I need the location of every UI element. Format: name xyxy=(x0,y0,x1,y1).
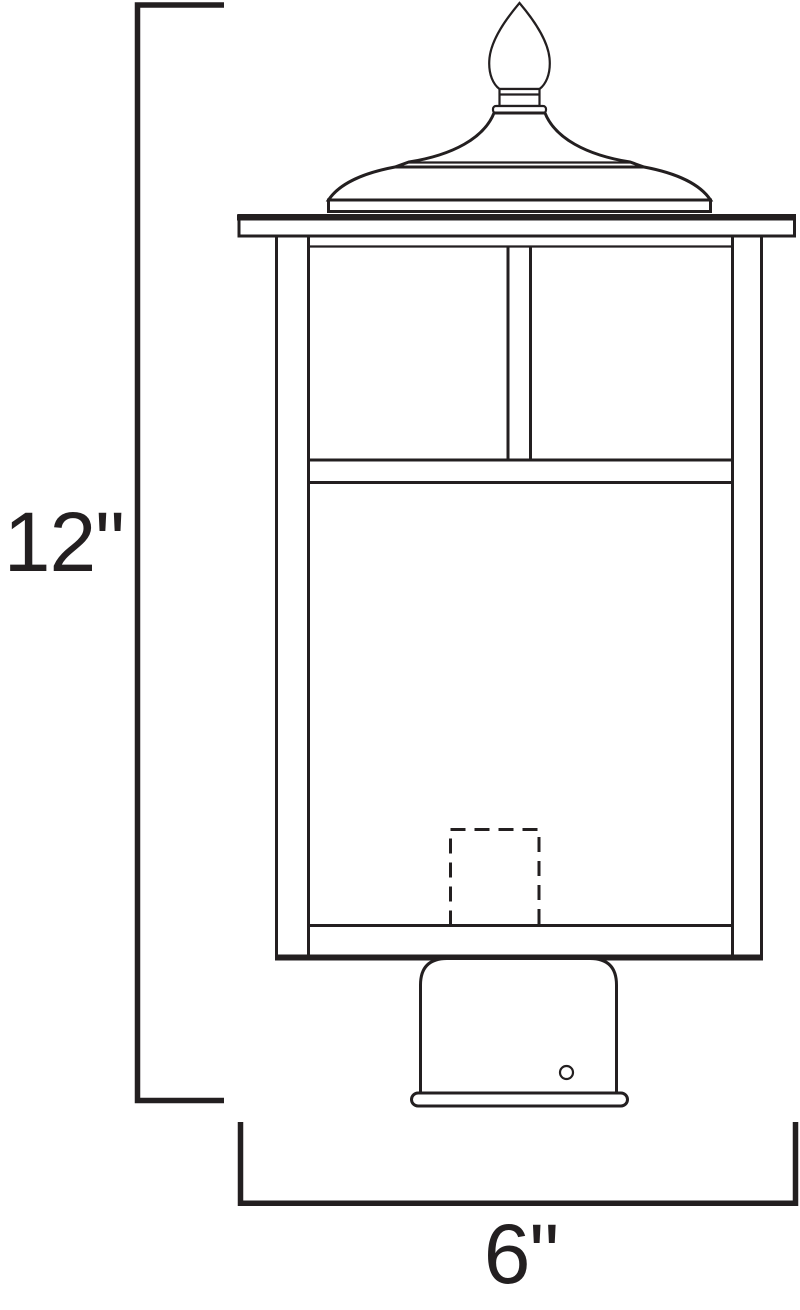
body-frame xyxy=(275,236,763,958)
socket-dashed-outline xyxy=(451,830,540,926)
width-dimension-bracket xyxy=(241,1122,796,1203)
mount-base-rim xyxy=(412,1093,628,1106)
dimension-diagram: 12" 6" xyxy=(0,0,800,1310)
roof xyxy=(329,113,711,212)
finial-collar xyxy=(500,89,540,106)
width-dimension-label: 6" xyxy=(421,1206,621,1303)
top-plate xyxy=(237,216,796,237)
roof-lower-dome xyxy=(329,167,711,200)
center-mullion xyxy=(508,247,531,461)
screw-hole xyxy=(560,1066,573,1079)
height-dimension-label: 12" xyxy=(0,494,124,591)
roof-upper-bell xyxy=(395,113,644,167)
lantern-line-drawing xyxy=(0,0,800,1310)
roof-rim xyxy=(329,200,711,212)
finial-bud xyxy=(489,3,550,89)
finial xyxy=(489,3,550,113)
post-mount xyxy=(412,959,628,1107)
mount-body xyxy=(421,959,617,1094)
height-dimension-bracket xyxy=(138,5,225,1101)
